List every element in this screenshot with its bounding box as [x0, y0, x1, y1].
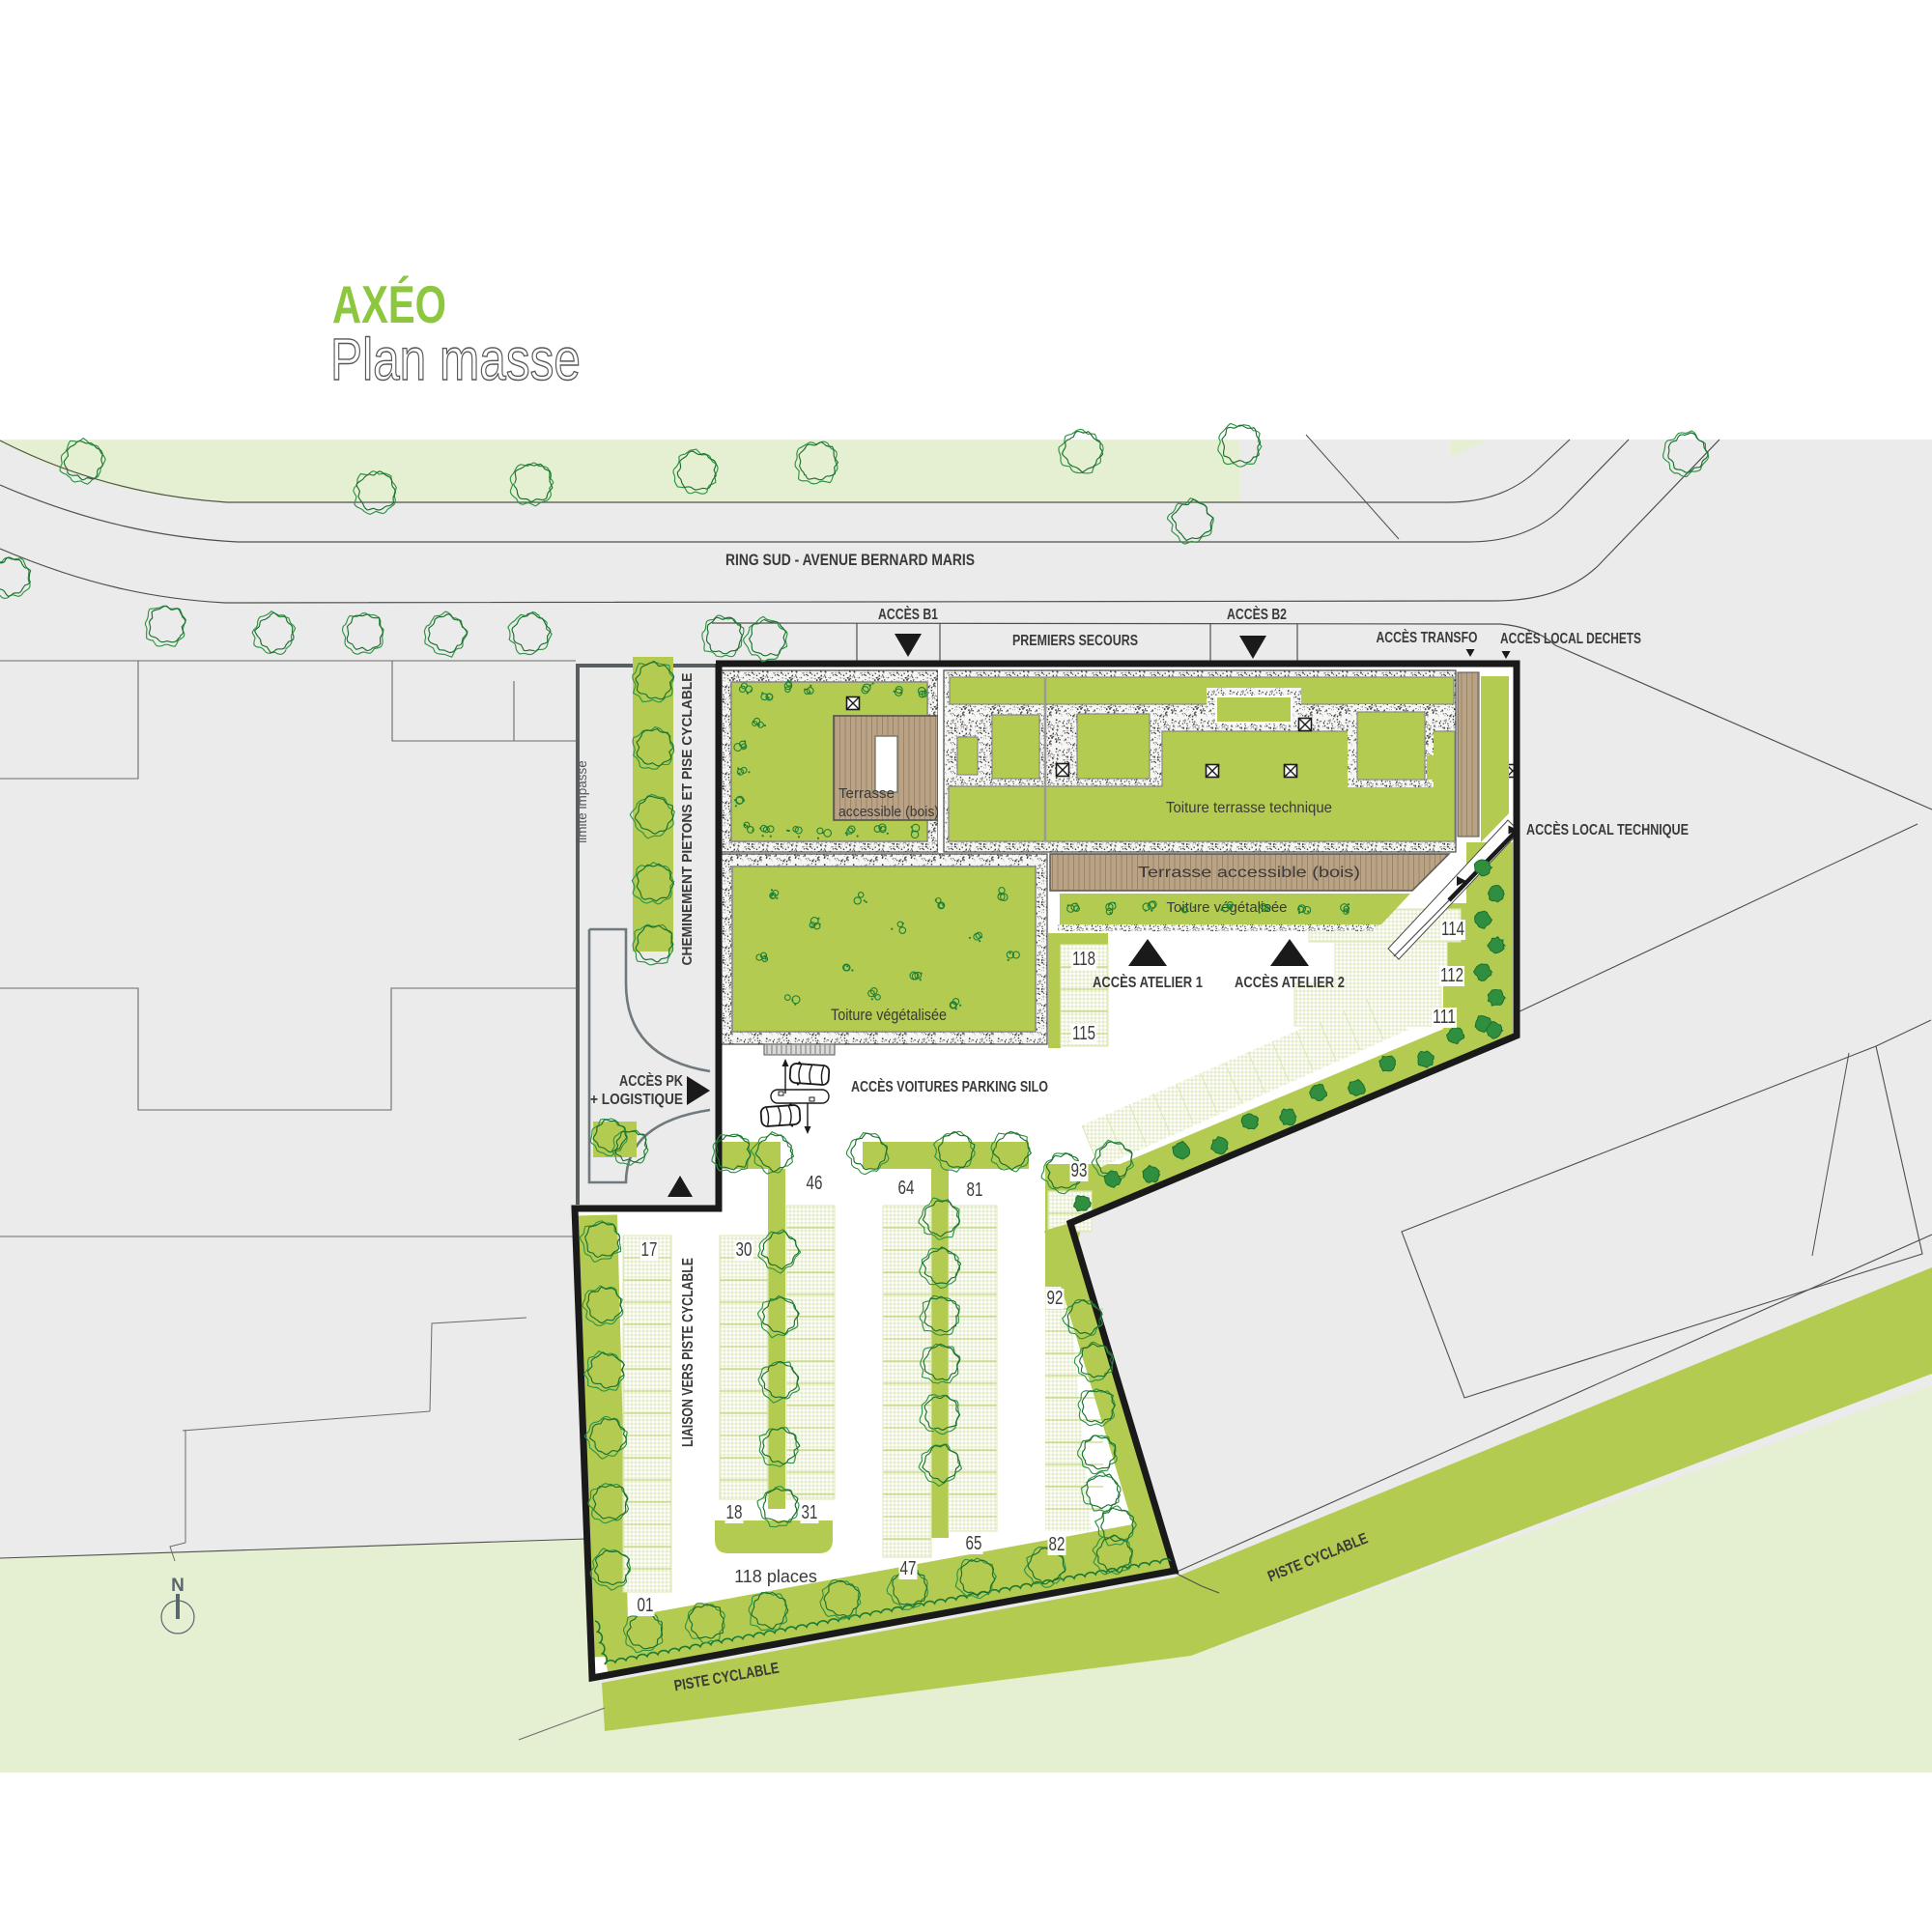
svg-text:+ LOGISTIQUE: + LOGISTIQUE [590, 1092, 683, 1108]
svg-text:112: 112 [1440, 965, 1463, 986]
svg-text:ACCÈS LOCAL DECHETS: ACCÈS LOCAL DECHETS [1500, 629, 1641, 647]
svg-text:Toiture végétalisée: Toiture végétalisée [1167, 899, 1288, 916]
svg-text:ACCÈS B1: ACCÈS B1 [878, 605, 938, 623]
svg-text:111: 111 [1433, 1007, 1456, 1028]
svg-text:18: 18 [726, 1502, 743, 1523]
svg-text:30: 30 [736, 1239, 753, 1261]
svg-text:ACCÈS B2: ACCÈS B2 [1227, 605, 1287, 623]
svg-text:Toiture terrasse technique: Toiture terrasse technique [1166, 800, 1332, 816]
svg-text:AXÉO: AXÉO [332, 274, 446, 334]
svg-text:ACCÈS ATELIER 1: ACCÈS ATELIER 1 [1093, 973, 1203, 991]
svg-text:92: 92 [1047, 1288, 1064, 1309]
svg-text:limite impasse: limite impasse [575, 760, 589, 843]
svg-text:Terrasse: Terrasse [838, 786, 895, 802]
svg-text:accessible (bois): accessible (bois) [838, 805, 939, 820]
svg-text:46: 46 [807, 1173, 823, 1194]
svg-text:N: N [171, 1576, 185, 1596]
svg-text:ACCÈS TRANSFO: ACCÈS TRANSFO [1377, 628, 1478, 646]
svg-text:ACCÈS PK: ACCÈS PK [619, 1073, 684, 1090]
svg-text:82: 82 [1049, 1534, 1065, 1555]
svg-text:115: 115 [1072, 1023, 1095, 1044]
svg-text:CHEMINEMENT PIETONS ET PISE CY: CHEMINEMENT PIETONS ET PISE CYCLABLE [680, 672, 696, 965]
svg-text:PREMIERS SECOURS: PREMIERS SECOURS [1012, 633, 1138, 649]
svg-text:Plan masse: Plan masse [330, 327, 581, 392]
svg-text:47: 47 [900, 1558, 917, 1579]
svg-text:17: 17 [641, 1239, 658, 1261]
svg-text:ACCÈS ATELIER 2: ACCÈS ATELIER 2 [1235, 973, 1345, 991]
svg-text:31: 31 [802, 1502, 818, 1523]
svg-text:LIAISON VERS PISTE CYCLABLE: LIAISON VERS PISTE CYCLABLE [680, 1258, 696, 1447]
svg-text:114: 114 [1441, 919, 1464, 940]
svg-text:118: 118 [1072, 949, 1095, 970]
svg-text:Terrasse accessible (bois): Terrasse accessible (bois) [1138, 865, 1360, 881]
svg-text:RING SUD - AVENUE BERNARD MARI: RING SUD - AVENUE BERNARD MARIS [725, 551, 975, 569]
svg-text:118 places: 118 places [734, 1567, 817, 1586]
svg-text:81: 81 [967, 1179, 983, 1201]
svg-text:Toiture végétalisée: Toiture végétalisée [831, 1006, 947, 1024]
svg-text:01: 01 [638, 1595, 654, 1616]
svg-text:ACCÈS LOCAL TECHNIQUE: ACCÈS LOCAL TECHNIQUE [1526, 820, 1689, 838]
svg-text:93: 93 [1071, 1160, 1088, 1181]
svg-text:ACCÈS VOITURES PARKING SILO: ACCÈS VOITURES PARKING SILO [851, 1077, 1048, 1095]
svg-text:65: 65 [966, 1533, 982, 1554]
svg-text:64: 64 [898, 1178, 915, 1199]
